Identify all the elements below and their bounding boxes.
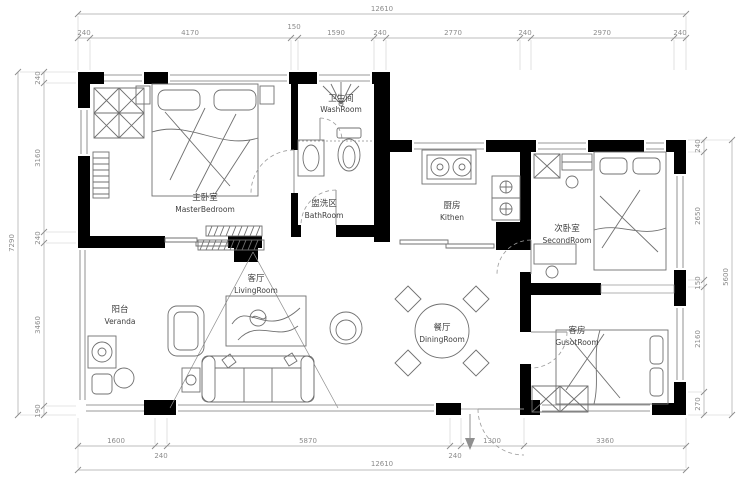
veranda-furniture [88,336,134,394]
dim-label: 5870 [299,437,317,445]
dining-room-label-en: DiningRoom [419,335,465,344]
dim-label: 240 [673,29,686,37]
dim-label: 240 [34,71,42,84]
floor-plan-canvas: 12610 240 4170 150 1590 240 2770 240 297… [0,0,750,490]
dim-label: 1590 [327,29,345,37]
dimension-labels-right: 5600 240 2650 150 2160 270 [694,139,730,410]
dim-label: 270 [694,397,702,410]
master-bedroom-label-en: MasterBedroom [175,205,235,214]
dim-label: 2650 [694,207,702,225]
dim-label: 1300 [483,437,501,445]
floor-plan-page: 12610 240 4170 150 1590 240 2770 240 297… [0,0,750,490]
guest-room-label-en: GusotRoom [555,338,598,347]
veranda-label-en: Veranda [105,317,136,326]
washroom-label-en: WashRoom [320,105,362,114]
dimension-labels-bottom: 1600 240 5870 240 1300 3360 12610 [107,437,614,468]
dim-label: 2160 [694,330,702,348]
dimension-labels-top: 12610 240 4170 150 1590 240 2770 240 297… [77,5,686,37]
bathroom-label-en: BathRoom [305,211,344,220]
bathroom-label-zh: 盥洗区 [311,198,337,209]
washroom-label-zh: 卫生间 [328,93,354,104]
dim-label: 240 [373,29,386,37]
dim-label: 240 [448,452,461,460]
wardrobe-x-boxes [94,88,144,138]
living-room-label-en: LivingRoom [234,286,278,295]
dimension-labels-left: 7290 240 3160 240 3460 190 [8,71,42,417]
dim-label: 3160 [34,149,42,167]
second-room-label-zh: 次卧室 [554,223,580,234]
kitchen-label-en: Kithen [440,213,464,222]
living-room-furniture [165,238,362,408]
dim-right-total: 5600 [722,268,730,286]
guest-room-furniture [532,330,668,412]
master-bedroom-label-zh: 主卧室 [192,192,218,203]
entry-arrow [465,414,475,450]
dim-label: 2770 [444,29,462,37]
dim-label: 2970 [593,29,611,37]
dim-label: 240 [518,29,531,37]
kitchen-label-zh: 厨房 [443,200,460,211]
second-room-furniture [534,152,666,278]
dim-label: 3360 [596,437,614,445]
dim-label: 4170 [181,29,199,37]
dim-label: 190 [34,404,42,417]
dim-bottom-total: 12610 [371,460,393,468]
walls [78,72,686,415]
second-room-label-en: SecondRoom [543,236,592,245]
dim-top-total: 12610 [371,5,393,13]
dim-label: 240 [34,231,42,244]
dining-room-label-zh: 餐厅 [433,323,451,333]
dim-left-total: 7290 [8,234,16,252]
dim-label: 1600 [107,437,125,445]
living-room-label-zh: 客厅 [247,273,265,284]
dim-label: 240 [154,452,167,460]
dim-label: 150 [287,23,300,31]
dim-label: 3460 [34,316,42,334]
dim-label: 240 [694,139,702,152]
dim-label: 150 [694,276,702,289]
veranda-label-zh: 阳台 [111,304,128,315]
dim-label: 240 [77,29,90,37]
guest-room-label-zh: 客房 [568,325,585,336]
